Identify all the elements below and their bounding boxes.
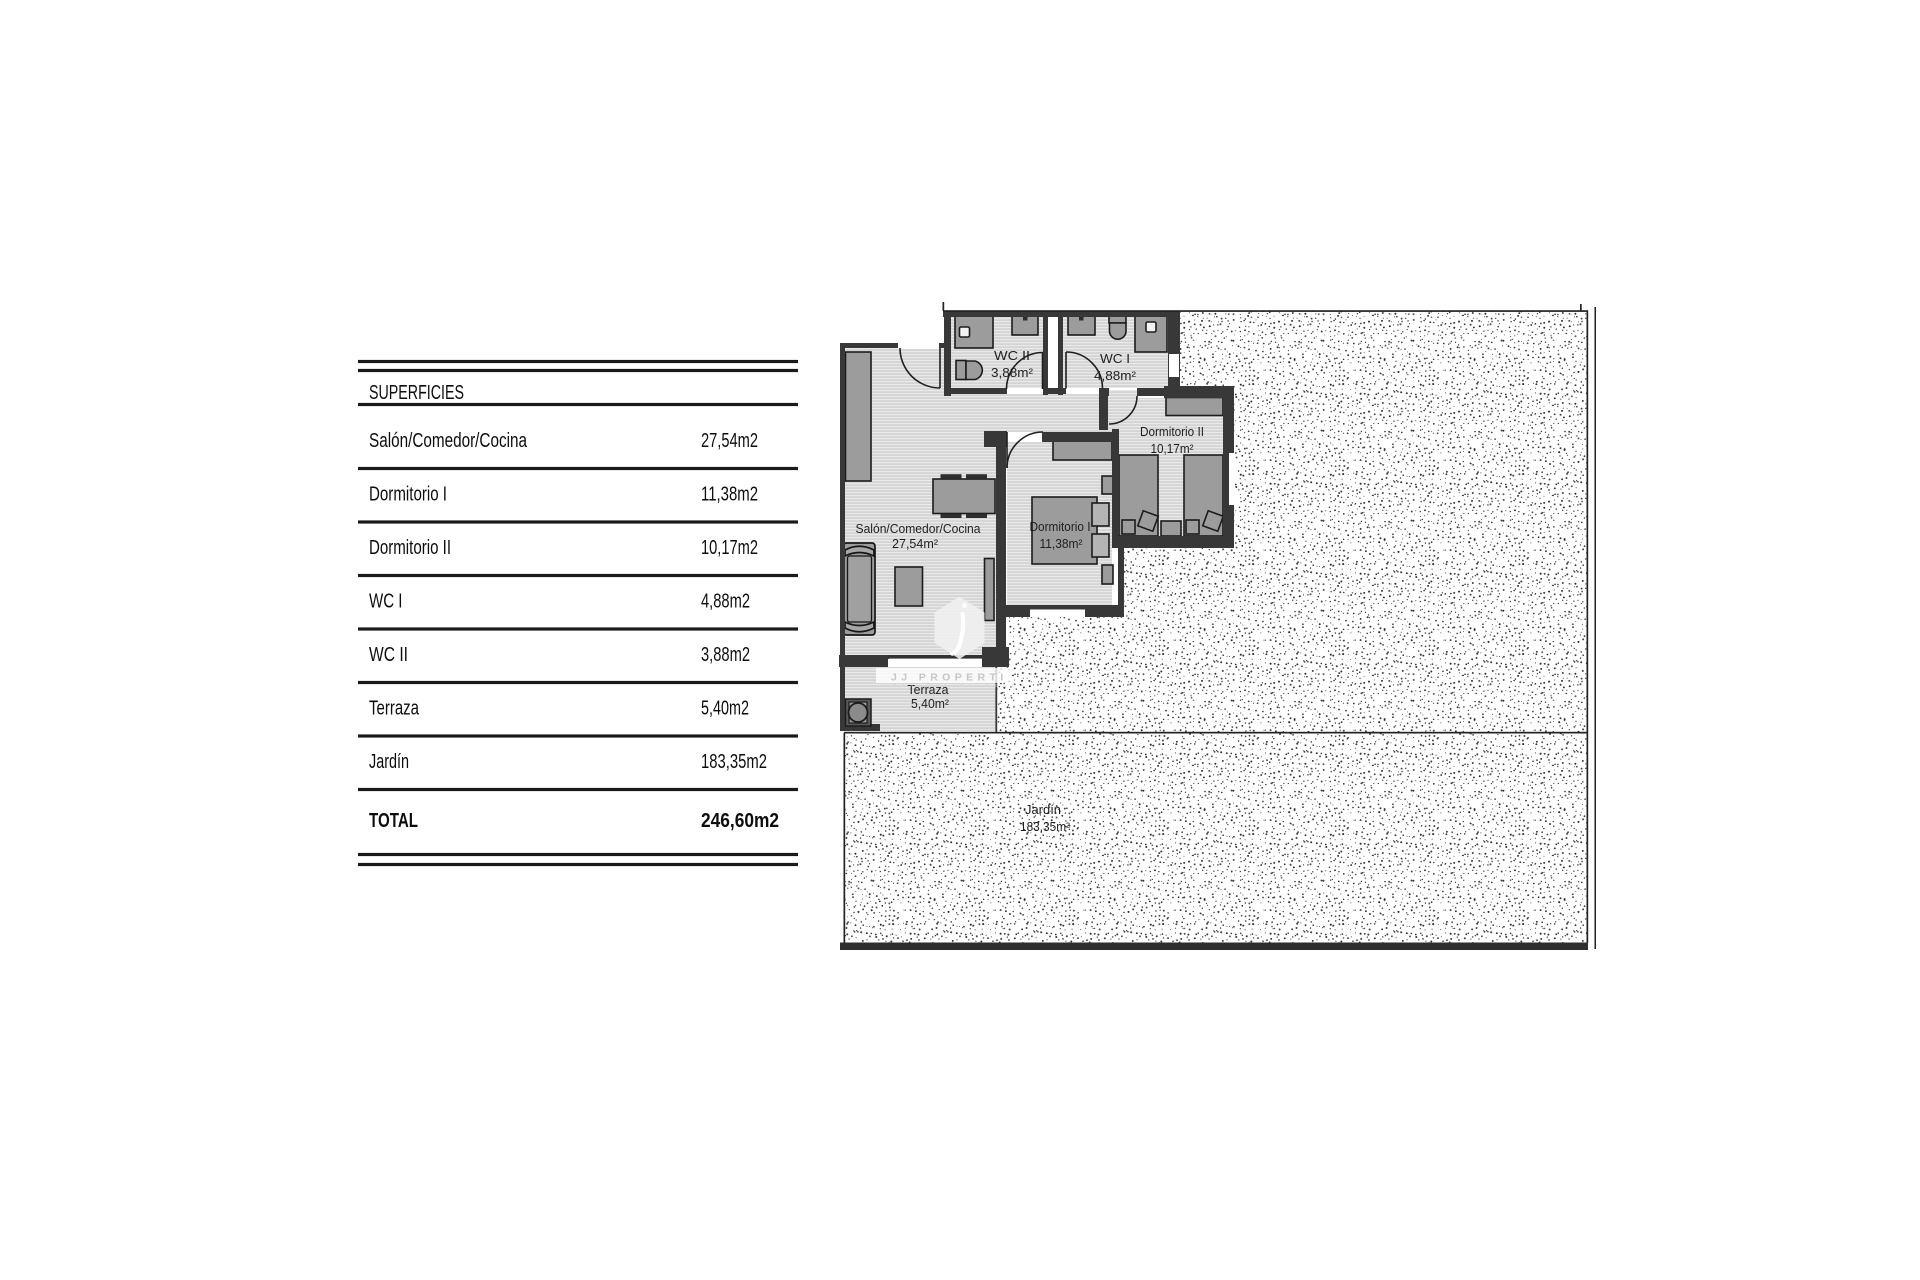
svg-text:WC II: WC II bbox=[369, 644, 408, 666]
svg-text:Salón/Comedor/Cocina: Salón/Comedor/Cocina bbox=[856, 521, 982, 536]
svg-text:4,88m²: 4,88m² bbox=[1094, 368, 1137, 383]
svg-text:WC I: WC I bbox=[369, 591, 403, 613]
svg-text:183,35m2: 183,35m2 bbox=[701, 751, 767, 773]
svg-text:246,60m2: 246,60m2 bbox=[701, 810, 779, 832]
svg-text:27,54m2: 27,54m2 bbox=[701, 430, 758, 452]
svg-text:SUPERFICIES: SUPERFICIES bbox=[369, 382, 464, 404]
svg-text:5,40m²: 5,40m² bbox=[911, 696, 950, 711]
svg-text:WC I: WC I bbox=[1100, 351, 1130, 366]
svg-text:Dormitorio II: Dormitorio II bbox=[369, 537, 451, 559]
svg-text:Terraza: Terraza bbox=[369, 698, 420, 720]
svg-text:WC II: WC II bbox=[994, 348, 1030, 363]
svg-text:Dormitorio I: Dormitorio I bbox=[1030, 519, 1091, 534]
svg-text:Dormitorio I: Dormitorio I bbox=[369, 484, 447, 506]
svg-text:10,17m2: 10,17m2 bbox=[701, 537, 758, 559]
svg-text:Jardín: Jardín bbox=[369, 751, 409, 773]
svg-text:R E A L E S T A T E A G E N: R E A L E S T A T E A G E N C Y bbox=[893, 683, 1026, 688]
svg-text:5,40m2: 5,40m2 bbox=[701, 698, 749, 720]
svg-text:4,88m2: 4,88m2 bbox=[701, 591, 750, 613]
svg-text:11,38m²: 11,38m² bbox=[1040, 536, 1084, 551]
svg-text:JJ PROPERTI: JJ PROPERTI bbox=[891, 672, 1008, 684]
svg-text:27,54m²: 27,54m² bbox=[892, 536, 939, 551]
svg-text:Salón/Comedor/Cocina: Salón/Comedor/Cocina bbox=[369, 430, 528, 452]
svg-text:3,88m²: 3,88m² bbox=[991, 365, 1034, 380]
svg-text:3,88m2: 3,88m2 bbox=[701, 644, 750, 666]
svg-text:183,35m²: 183,35m² bbox=[1020, 819, 1071, 834]
svg-text:TOTAL: TOTAL bbox=[369, 810, 418, 832]
svg-text:11,38m2: 11,38m2 bbox=[701, 484, 758, 506]
svg-text:10,17m²: 10,17m² bbox=[1151, 441, 1195, 456]
svg-text:Jardín: Jardín bbox=[1025, 802, 1061, 817]
svg-text:Dormitorio II: Dormitorio II bbox=[1140, 424, 1204, 439]
